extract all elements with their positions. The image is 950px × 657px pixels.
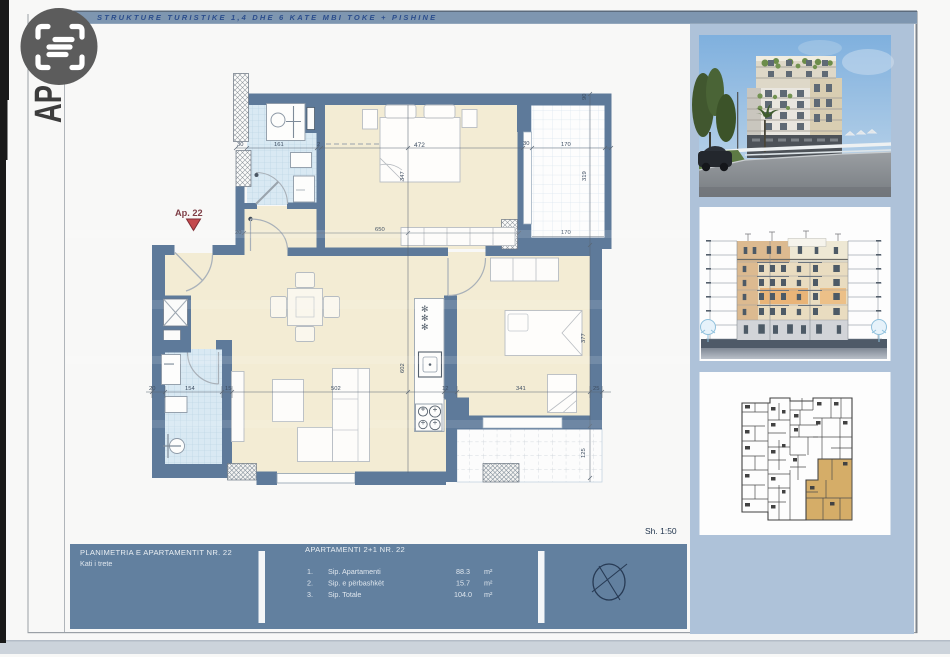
svg-text:25: 25	[593, 386, 599, 392]
svg-text:88.3: 88.3	[456, 567, 470, 576]
svg-text:✻: ✻	[421, 322, 429, 332]
svg-text:1.: 1.	[307, 567, 313, 576]
svg-text:Sip. Totale: Sip. Totale	[328, 590, 361, 599]
svg-text:PLANIMETRIA E APARTAMENTIT NR.: PLANIMETRIA E APARTAMENTIT NR. 22	[80, 548, 232, 557]
svg-text:502: 502	[331, 386, 341, 392]
svg-text:AP: AP	[28, 85, 70, 123]
svg-text:STRUKTURE TURISTIKE 1,4 DHE 6: STRUKTURE TURISTIKE 1,4 DHE 6 KATE MBI T…	[97, 13, 437, 22]
svg-text:20: 20	[149, 386, 155, 392]
svg-text:Sh. 1:50: Sh. 1:50	[645, 526, 677, 536]
svg-text:472: 472	[414, 142, 425, 149]
svg-text:125: 125	[581, 448, 587, 458]
svg-text:APARTAMENTI 2+1 NR. 22: APARTAMENTI 2+1 NR. 22	[305, 545, 405, 554]
svg-text:90: 90	[582, 94, 588, 100]
svg-text:30: 30	[237, 142, 243, 148]
svg-text:Sip. Apartamenti: Sip. Apartamenti	[328, 567, 381, 576]
svg-text:319: 319	[582, 171, 588, 181]
svg-text:602: 602	[400, 363, 406, 373]
svg-text:m²: m²	[484, 590, 493, 599]
svg-text:347: 347	[400, 171, 406, 181]
svg-text:377: 377	[581, 333, 587, 343]
svg-text:3.: 3.	[307, 590, 313, 599]
svg-text:341: 341	[516, 386, 526, 392]
svg-text:161: 161	[274, 142, 284, 148]
svg-text:170: 170	[561, 142, 571, 148]
svg-text:104.0: 104.0	[454, 590, 472, 599]
svg-text:Kati i trete: Kati i trete	[80, 559, 112, 568]
svg-text:m²: m²	[484, 579, 493, 588]
svg-text:Sip. e përbashkët: Sip. e përbashkët	[328, 579, 384, 588]
svg-text:15.7: 15.7	[456, 579, 470, 588]
svg-text:2.: 2.	[307, 579, 313, 588]
svg-text:15: 15	[225, 386, 231, 392]
svg-text:m²: m²	[484, 567, 493, 576]
svg-text:Ap. 22: Ap. 22	[175, 208, 203, 218]
svg-text:154: 154	[185, 386, 195, 392]
svg-text:30: 30	[523, 141, 529, 147]
